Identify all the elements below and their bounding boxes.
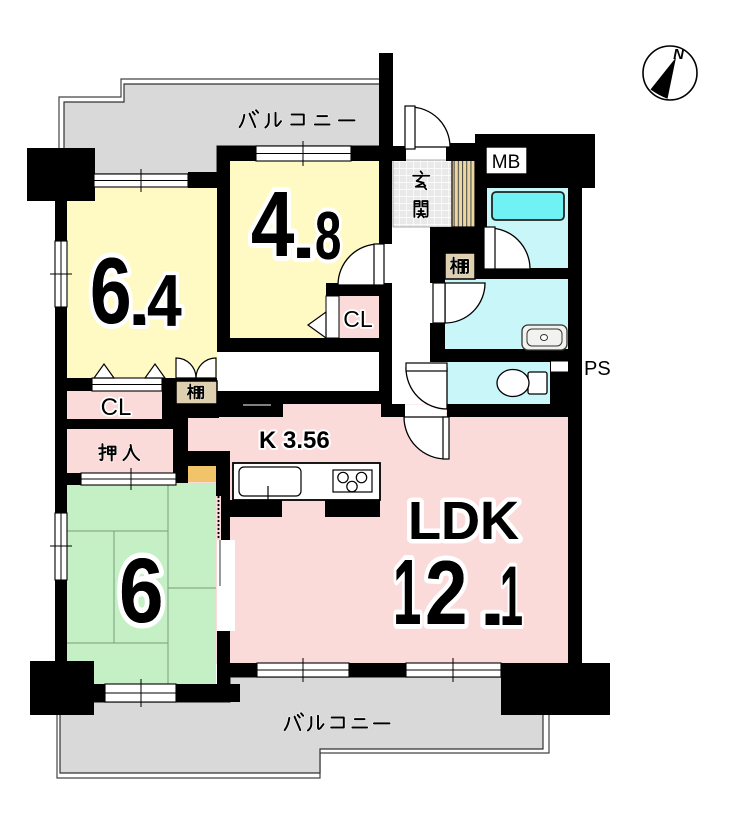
svg-text:6: 6	[119, 540, 164, 642]
svg-text:CL: CL	[101, 394, 132, 421]
svg-text:MB: MB	[492, 152, 521, 173]
svg-text:4: 4	[251, 173, 295, 277]
svg-text:2: 2	[425, 542, 467, 644]
svg-text:.: .	[291, 197, 316, 274]
svg-text:1: 1	[393, 540, 421, 644]
svg-text:LDK: LDK	[408, 491, 519, 551]
svg-text:PS: PS	[584, 358, 611, 380]
svg-text:4: 4	[147, 262, 182, 343]
svg-text:8: 8	[315, 199, 341, 274]
svg-text:CL: CL	[343, 306, 373, 332]
svg-text:1: 1	[500, 550, 523, 644]
svg-text:6: 6	[90, 238, 132, 343]
svg-text:K 3.56: K 3.56	[259, 427, 330, 454]
svg-text:N: N	[673, 46, 685, 63]
